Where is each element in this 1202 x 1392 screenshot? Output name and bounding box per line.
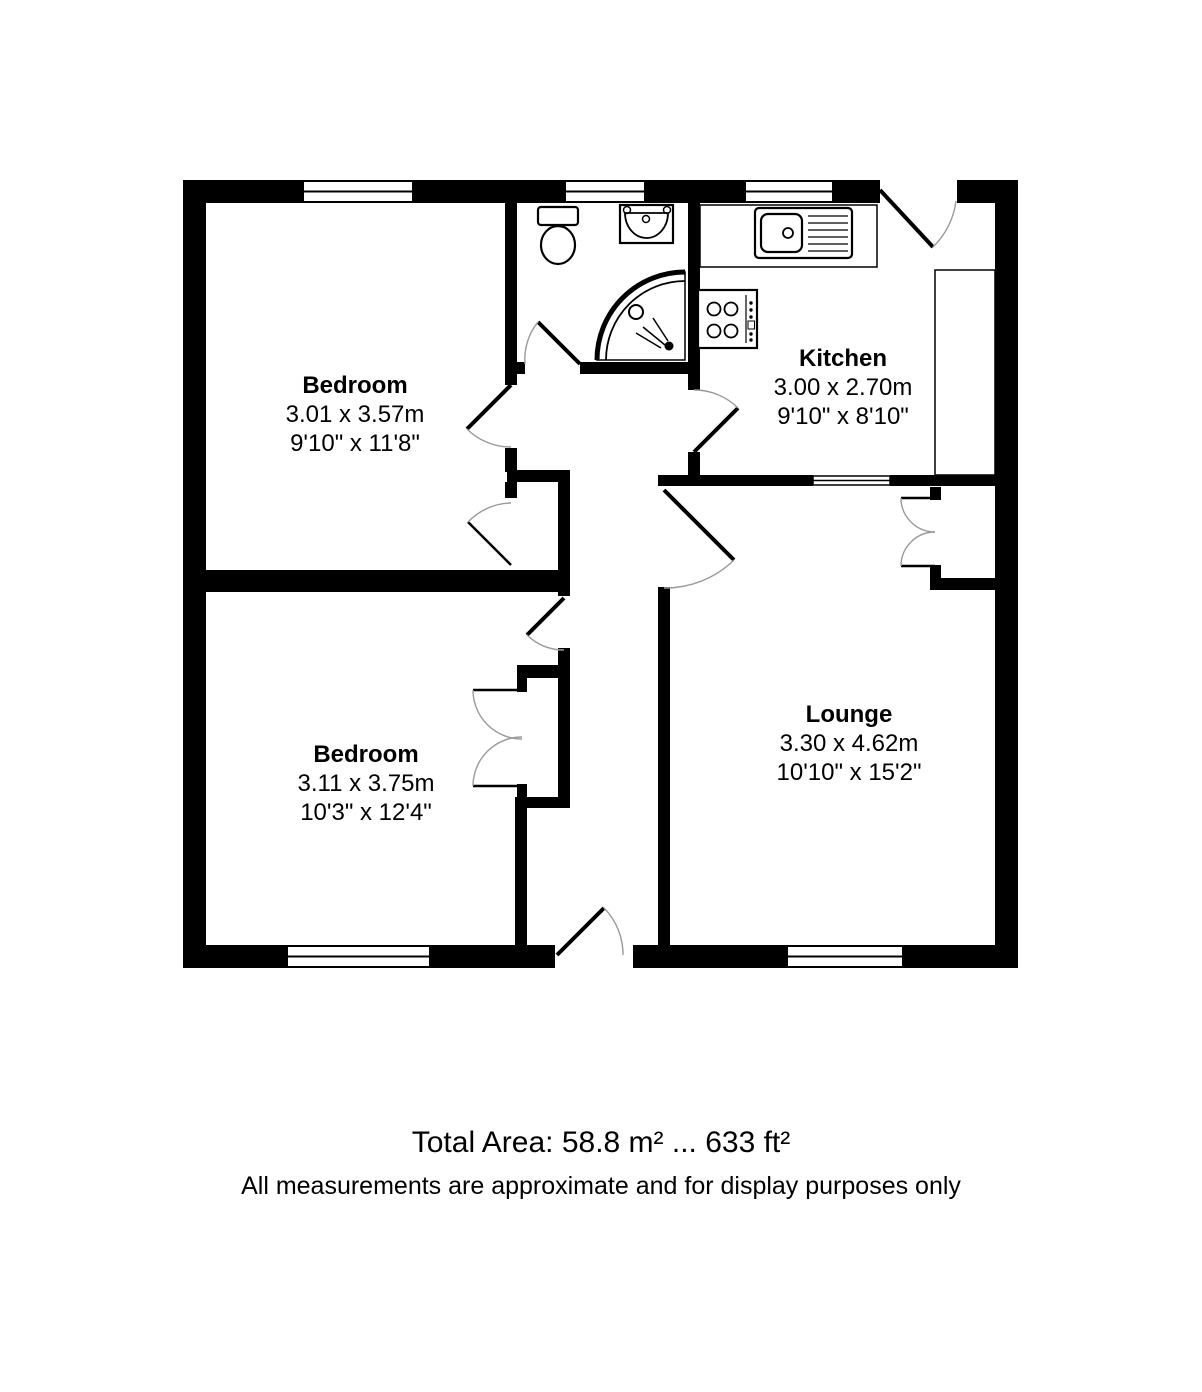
room-label-bedroom-2: Bedroom 3.11 x 3.75m 10'3" x 12'4" (298, 740, 435, 827)
room-dim-imperial: 9'10" x 8'10" (774, 402, 913, 431)
wardrobe-double-doors-icon (901, 498, 935, 566)
window-icon (287, 946, 430, 967)
toilet-icon (538, 207, 578, 264)
bathroom-fixtures (538, 205, 685, 360)
room-name: Kitchen (774, 344, 913, 373)
room-dim-metric: 3.30 x 4.62m (777, 729, 922, 758)
counter-unit-icon (935, 270, 995, 475)
wall-segment (995, 180, 1018, 968)
door-icon (467, 385, 511, 447)
room-name: Bedroom (298, 740, 435, 769)
wall-segment (633, 945, 787, 968)
wall-segment (658, 475, 813, 486)
door-icon (880, 190, 956, 247)
wall-segment (505, 482, 517, 498)
room-label-kitchen: Kitchen 3.00 x 2.70m 9'10" x 8'10" (774, 344, 913, 431)
window-icon (813, 476, 890, 485)
door-icon (694, 390, 738, 452)
door-icon (527, 598, 564, 650)
disclaimer-text: All measurements are approximate and for… (0, 1170, 1202, 1202)
wardrobe-double-doors-icon (473, 690, 522, 786)
hob-icon (698, 290, 757, 348)
room-name: Lounge (777, 700, 922, 729)
kitchen-fixtures (698, 205, 995, 475)
wall-segment (515, 797, 527, 945)
door-icon (664, 490, 734, 588)
wall-segment (903, 945, 1018, 968)
total-area-text: Total Area: 58.8 m² ... 633 ft² (0, 1124, 1202, 1162)
wall-segment (505, 203, 517, 385)
room-dim-imperial: 10'10" x 15'2" (777, 758, 922, 787)
wall-segment (505, 448, 517, 472)
room-name: Bedroom (286, 371, 425, 400)
wall-segment (183, 945, 287, 968)
wall-segment (930, 578, 995, 590)
room-dim-imperial: 9'10" x 11'8" (286, 429, 425, 458)
wall-segment (833, 180, 880, 203)
window-icon (787, 946, 903, 967)
window-icon (565, 181, 645, 202)
corner-shower-icon (597, 272, 685, 360)
door-icon (525, 322, 580, 364)
window-icon (303, 181, 413, 202)
wall-segment (658, 587, 670, 945)
wall-segment (645, 180, 745, 203)
wall-segment (183, 570, 570, 592)
room-label-lounge: Lounge 3.30 x 4.62m 10'10" x 15'2" (777, 700, 922, 787)
door-icon (557, 908, 623, 955)
room-dim-metric: 3.11 x 3.75m (298, 769, 435, 798)
wall-segment (558, 665, 570, 797)
room-dim-metric: 3.01 x 3.57m (286, 400, 425, 429)
basin-icon (620, 205, 673, 243)
sink-drainer-icon (755, 208, 852, 258)
floorplan-canvas: Bedroom 3.01 x 3.57m 9'10" x 11'8" Kitch… (0, 0, 1202, 1392)
wall-segment (517, 362, 525, 374)
room-dim-metric: 3.00 x 2.70m (774, 373, 913, 402)
wall-segment (890, 475, 995, 486)
walls (183, 180, 1018, 968)
wall-segment (580, 362, 688, 374)
room-label-bedroom-1: Bedroom 3.01 x 3.57m 9'10" x 11'8" (286, 371, 425, 458)
wall-segment (688, 452, 700, 475)
window-icon (745, 181, 833, 202)
wall-segment (413, 180, 565, 203)
room-dim-imperial: 10'3" x 12'4" (298, 798, 435, 827)
door-icon (468, 503, 511, 565)
wall-segment (430, 945, 555, 968)
